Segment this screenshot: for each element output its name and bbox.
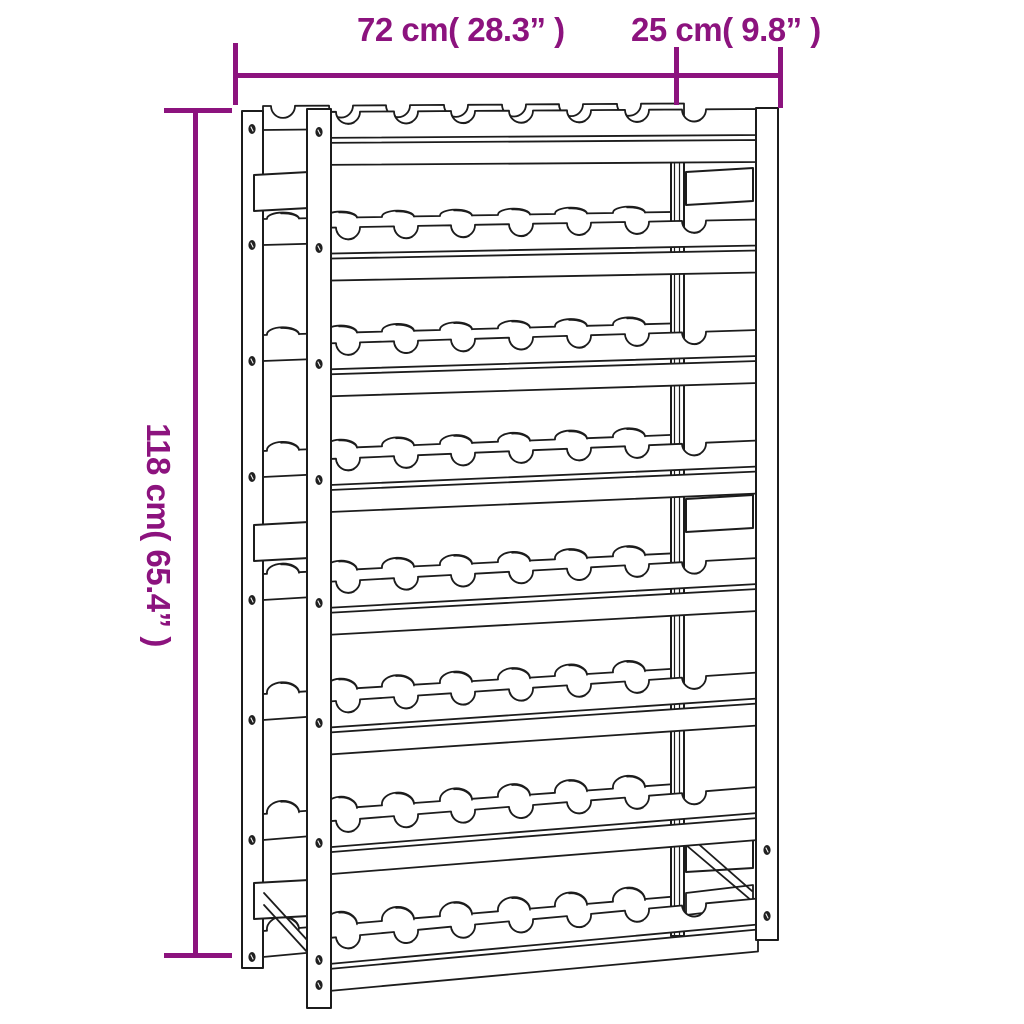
width-dimension-line xyxy=(233,73,782,78)
depth-dimension-label: 25 cm( 9.8” ) xyxy=(631,12,821,48)
height-dimension-cap-top xyxy=(164,108,232,113)
diagram-canvas: { "figure": { "type": "product-dimension… xyxy=(0,0,1024,1024)
height-dimension-label: 118 cm( 65.4” ) xyxy=(140,423,176,647)
height-dimension-line xyxy=(193,110,198,958)
width-dimension-label: 72 cm( 28.3” ) xyxy=(357,12,565,48)
width-dimension-tick-left xyxy=(233,43,238,105)
width-dimension-tick-middle xyxy=(674,47,679,105)
height-dimension-cap-bottom xyxy=(164,953,232,958)
width-dimension-tick-right xyxy=(778,47,783,108)
